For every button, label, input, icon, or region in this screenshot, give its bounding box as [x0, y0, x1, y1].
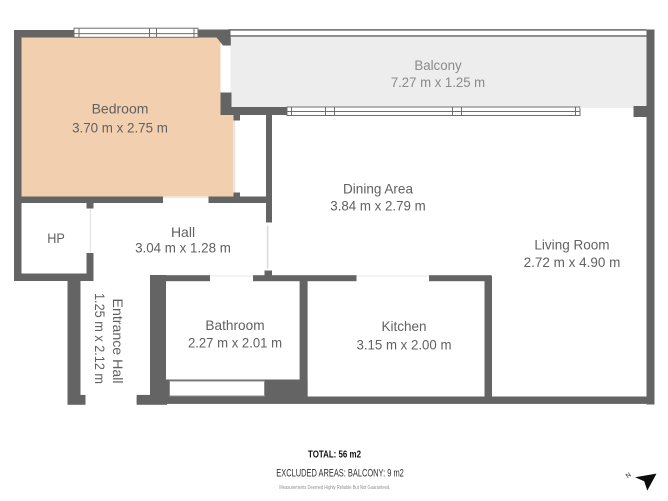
svg-text:Entrance Hall: Entrance Hall	[110, 299, 126, 384]
svg-text:2.27 m x 2.01 m: 2.27 m x 2.01 m	[188, 336, 282, 351]
svg-text:Hall: Hall	[171, 224, 195, 240]
svg-text:HP: HP	[47, 230, 65, 246]
svg-text:3.84 m x 2.79 m: 3.84 m x 2.79 m	[330, 199, 425, 214]
svg-text:Balcony: Balcony	[414, 57, 461, 73]
svg-text:Dining Area: Dining Area	[343, 181, 413, 197]
svg-text:Living Room: Living Room	[534, 237, 609, 253]
svg-text:2.72 m x 4.90 m: 2.72 m x 4.90 m	[524, 255, 621, 270]
svg-text:7.27 m x 1.25 m: 7.27 m x 1.25 m	[391, 75, 485, 90]
svg-text:Measurements Deemed Highly Rel: Measurements Deemed Highly Reliable But …	[279, 485, 390, 491]
svg-text:3.70 m x 2.75 m: 3.70 m x 2.75 m	[72, 121, 168, 136]
svg-text:Bedroom: Bedroom	[92, 101, 149, 117]
svg-text:Bathroom: Bathroom	[205, 317, 264, 333]
svg-text:TOTAL: 56 m2: TOTAL: 56 m2	[308, 450, 361, 461]
svg-text:Kitchen: Kitchen	[382, 318, 427, 334]
svg-text:3.15 m x 2.00 m: 3.15 m x 2.00 m	[357, 338, 452, 353]
svg-text:EXCLUDED AREAS: BALCONY: 9 m2: EXCLUDED AREAS: BALCONY: 9 m2	[276, 467, 404, 479]
svg-text:1.25 m x 2.12 m: 1.25 m x 2.12 m	[92, 293, 107, 384]
svg-text:3.04 m x 1.28 m: 3.04 m x 1.28 m	[135, 241, 231, 256]
